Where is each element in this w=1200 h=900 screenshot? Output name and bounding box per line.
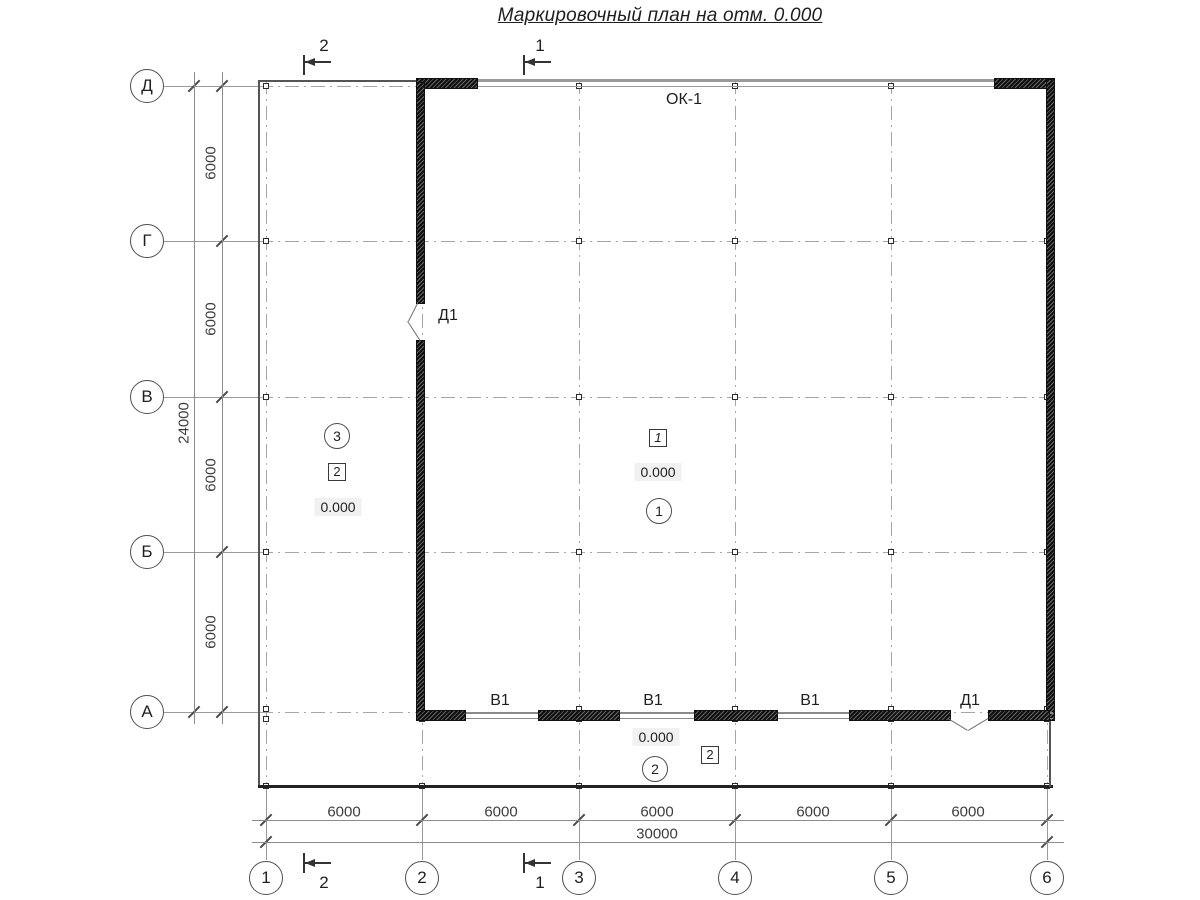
axis-col-stub-5 [1047,788,1048,860]
column-marker-r3-c0 [263,549,269,555]
column-marker-r1-c0 [263,238,269,244]
wall-axis2-lower [416,340,425,718]
wall-pier-top-left [416,78,478,89]
dim-bottom-3: 6000 [640,804,673,821]
door-swing-axisA-right [968,718,988,731]
room-hall-elevation: 0.000 [634,463,681,481]
axis-row-stub-1 [164,241,260,242]
cut-1-bottom-arrow-icon [525,859,535,867]
cut-1-bottom-label: 1 [535,873,544,893]
axis-row-stub-4 [164,712,260,713]
axis-bubble-D: Д [130,69,164,103]
axis-bubble-B: Б [130,535,164,569]
dim-line-left-segments [222,72,223,724]
axis-bubble-5: 5 [874,861,908,895]
wall-annex-top [258,80,418,82]
column-marker-r3-c2 [576,549,582,555]
window-mark-label: ОК-1 [666,91,702,109]
cut-2-bottom-arrow-icon [305,859,315,867]
column-marker-r1-c3 [732,238,738,244]
page-title: Маркировочный план на отм. 0.000 [498,5,823,27]
column-marker-A-top-c0 [263,706,269,712]
door-swing-axisA-left [947,718,967,731]
axis-col-line-4 [891,80,892,786]
room-annex-bottom-elevation: 0.000 [632,728,679,746]
column-marker-r2-c2 [576,394,582,400]
cut-1-top-arrow-icon [525,58,535,66]
axis-bubble-3: 3 [562,861,596,895]
axis-bubble-6: 6 [1030,861,1064,895]
dim-line-left-total [194,72,195,724]
axis-bubble-4: 4 [718,861,752,895]
axis-row-line-2 [259,397,1054,398]
column-marker-r2-c0 [263,394,269,400]
cut-1-top-label: 1 [535,36,544,56]
axis-bubble-1: 1 [249,861,283,895]
column-marker-r1-c4 [888,238,894,244]
wall-axis6 [1046,79,1055,721]
dim-left-4: 6000 [203,615,220,648]
room-hall-type-box: 1 [649,429,667,447]
door-swing-axis2-lower [407,321,420,341]
column-marker-r3-c3 [732,549,738,555]
cut-2-top-label: 2 [319,36,328,56]
door-mark-axisA-label: Д1 [960,692,980,710]
dim-bottom-2: 6000 [484,804,517,821]
column-marker-r2-c3 [732,394,738,400]
column-marker-A-bot-c0 [263,716,269,722]
column-marker-r1-c2 [576,238,582,244]
axis-bubble-G: Г [130,224,164,258]
cut-2-bottom-label: 2 [319,873,328,893]
wall-bottom [258,785,1053,788]
door-mark-axis2-label: Д1 [438,307,458,325]
cut-2-top-arrow-icon [305,58,315,66]
axis-row-line-3 [259,552,1054,553]
axis-bubble-A: А [130,695,164,729]
window-strip-ok1 [416,79,1053,87]
axis-bubble-V: В [130,380,164,414]
axis-col-stub-3 [735,788,736,860]
dim-left-1: 6000 [203,146,220,179]
axis-row-stub-3 [164,552,260,553]
column-marker-r3-c4 [888,549,894,555]
dim-left-total: 24000 [176,402,193,444]
room-annex-bottom-number: 2 [642,756,668,782]
dim-left-2: 6000 [203,302,220,335]
column-marker-r0-c0 [263,83,269,89]
gate-leaf-1 [416,710,466,721]
wall-axis2-upper [416,82,425,304]
gate-mark-3-label: В1 [800,692,820,710]
axis-col-stub-0 [266,788,267,860]
dim-left-3: 6000 [203,458,220,491]
dim-bottom-5: 6000 [951,804,984,821]
axis-col-stub-4 [891,788,892,860]
dim-bottom-4: 6000 [796,804,829,821]
room-annex-left-type-box: 2 [328,463,346,481]
room-annex-bottom-type-box: 2 [701,746,719,764]
gate-leaf-4 [849,710,951,721]
room-annex-left-elevation: 0.000 [314,498,361,516]
column-marker-r2-c4 [888,394,894,400]
gate-mark-2-label: В1 [643,692,663,710]
dim-bottom-1: 6000 [327,804,360,821]
axis-col-line-3 [735,80,736,786]
room-annex-left-number: 3 [324,423,350,449]
axis-col-stub-2 [579,788,580,860]
wall-axis1-left [258,80,260,788]
room-hall-number: 1 [646,498,672,524]
wall-axis6-lower-thin [1049,719,1051,787]
dim-bottom-total: 30000 [636,826,678,843]
axis-col-line-2 [579,80,580,786]
axis-col-line-0 [266,80,267,786]
gate-leaf-5 [988,710,1050,721]
axis-col-stub-1 [422,788,423,860]
axis-row-line-1 [259,241,1054,242]
axis-row-stub-2 [164,397,260,398]
door-swing-axis2-upper [408,303,418,321]
gate-leaf-2 [538,710,620,721]
axis-bubble-2: 2 [405,861,439,895]
floor-plan-drawing: Маркировочный план на отм. 0.000 ОК-1 Д1… [0,0,1200,900]
gate-mark-1-label: В1 [490,692,510,710]
axis-row-stub-0 [164,86,260,87]
gate-leaf-3 [694,710,778,721]
